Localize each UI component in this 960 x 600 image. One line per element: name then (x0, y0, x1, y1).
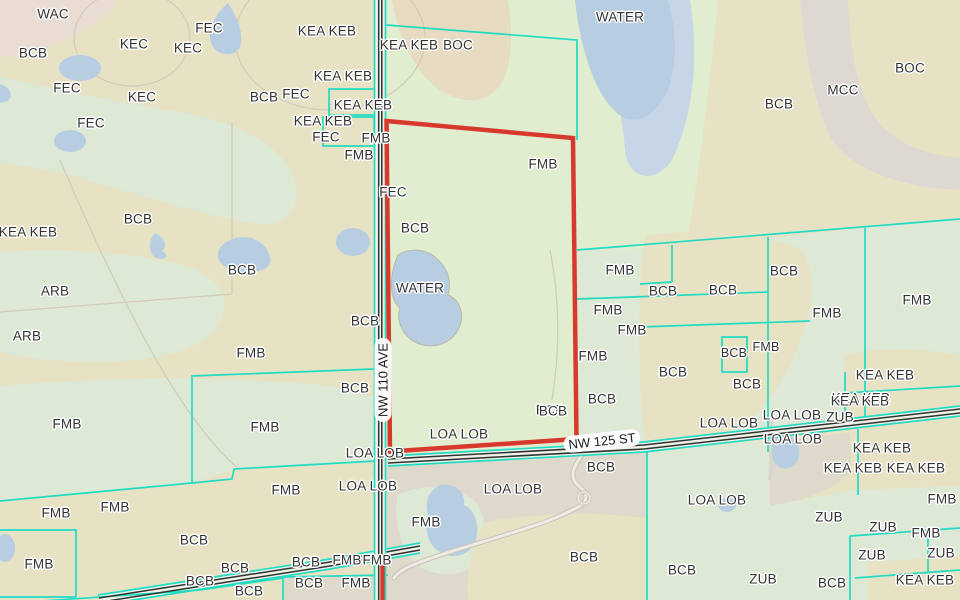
soil-label-fmb: FMB (344, 148, 373, 163)
soil-label-bcb: BCB (770, 264, 798, 279)
soil-label-kea-keb: KEA KEB (853, 441, 911, 456)
soil-label-loa-lob: LOA LOB (764, 432, 822, 447)
soil-label-bcb: BCB (570, 550, 598, 565)
soil-label-bcb: BCB (765, 97, 793, 112)
soil-label-fmb: FMB (271, 483, 300, 498)
map-label-layer: WACBCBKECFECKECFECKECBCBFECFECKEA KEBBCB… (0, 0, 960, 600)
soil-label-fmb: FMB (236, 346, 265, 361)
soil-label-fmb: FMB (617, 323, 646, 338)
soil-label-zub: ZUB (749, 572, 777, 587)
soil-label-fmb: FMB (411, 515, 440, 530)
soil-label-fmb: FMB (528, 157, 557, 172)
road-label-nw-125-st: NW 125 ST (563, 429, 642, 454)
soil-label-loa-lob: LOA LOB (484, 482, 542, 497)
soil-label-wac: WAC (37, 7, 69, 22)
soil-label-fec: FEC (53, 81, 81, 96)
soil-label-kec: KEC (174, 41, 202, 56)
soil-label-bcb: BCB (341, 381, 369, 396)
soil-label-kea-keb: KEA KEB (298, 24, 356, 39)
soil-label-bcb: BCB (250, 90, 278, 105)
soil-label-loa-lob: LOA LOB (688, 493, 746, 508)
soil-label-zub: ZUB (927, 546, 955, 561)
soil-label-kea-keb: KEA KEB (887, 461, 945, 476)
soil-label-fmb: FMB (902, 293, 931, 308)
soil-label-zub: ZUB (826, 410, 854, 425)
soil-label-bcb: BCB (180, 533, 208, 548)
soil-label-fmb: FMB (927, 492, 956, 507)
soil-label-fmb: FMB (593, 303, 622, 318)
soil-label-fmb: FMB (605, 263, 634, 278)
soil-label-bcb: BCB (401, 221, 429, 236)
soil-label-loa-lob: LOA LOB (339, 479, 397, 494)
soil-label-fmb: FMB (753, 340, 780, 354)
soil-label-bcb: BCB (228, 263, 256, 278)
soil-label-fmb: FMB (41, 506, 70, 521)
soil-label-water: WATER (396, 281, 444, 296)
soil-label-loa-lob: LOA LOB (346, 446, 404, 461)
soil-label-bcb: BCB (649, 284, 677, 299)
soil-label-bcb: BCB (721, 346, 747, 360)
soil-label-fmb: FMB (812, 306, 841, 321)
soil-label-fmb: FMB (250, 420, 279, 435)
soil-label-fmb: FMB (578, 349, 607, 364)
soil-label-kea-keb: KEA KEB (0, 225, 57, 240)
soil-label-fmb: FMB (332, 553, 361, 568)
soil-label-bcb: BCB (709, 283, 737, 298)
soil-label-bcb: BCB (292, 555, 320, 570)
soil-label-kec: KEC (120, 37, 148, 52)
soil-label-fmb: FMB (24, 557, 53, 572)
soil-label-bcb: BCB (588, 392, 616, 407)
soil-label-loa-lob: LOA LOB (700, 416, 758, 431)
soil-label-bcb: BCB (733, 377, 761, 392)
soil-label-fmb: FMB (341, 576, 370, 591)
soil-label-bcb: BCB (351, 314, 379, 329)
soil-label-water: WATER (596, 10, 644, 25)
soil-label-fec: FEC (77, 116, 105, 131)
soil-label-bcb: BCB (587, 460, 615, 475)
soil-label-bcb: BCB (818, 576, 846, 591)
soil-label-fmb: FMB (911, 526, 940, 541)
soil-label-kea-keb: KEA KEB (294, 114, 352, 129)
soil-label-bcb: BCB (221, 561, 249, 576)
soil-label-kea-keb: KEA KEB (334, 98, 392, 113)
soil-label-bcb: BCB (295, 576, 323, 591)
soil-label-fec: FEC (379, 185, 407, 200)
soil-label-fmb: FMB (52, 417, 81, 432)
soil-label-loa-lob: LOA LOB (763, 408, 821, 423)
road-label-nw-110-ave: NW 110 AVE (375, 338, 392, 422)
soil-label-arb: ARB (13, 329, 41, 344)
soil-label-zub: ZUB (869, 520, 897, 535)
soil-label-boc: BOC (443, 38, 473, 53)
soil-label-bcb: BCB (668, 563, 696, 578)
soil-label-bcb: BCB (235, 584, 263, 599)
soil-label-zub: ZUB (858, 548, 886, 563)
soil-label-kea-keb: KEA KEB (896, 573, 954, 588)
soil-label-boc: BOC (895, 61, 925, 76)
soil-label-fmb: FMB (361, 131, 390, 146)
soil-label-kea-keb: KEA KEB (824, 461, 882, 476)
soil-label-arb: ARB (41, 284, 69, 299)
soil-label-kea-keb: KEA KEB (856, 368, 914, 383)
soil-label-loa-lob: LOA LOB (430, 427, 488, 442)
map-viewport[interactable]: WACBCBKECFECKECFECKECBCBFECFECKEA KEBBCB… (0, 0, 960, 600)
soil-label-bcb: BCB (19, 46, 47, 61)
soil-label-kec: KEC (128, 90, 156, 105)
soil-label-bcb: BCB (124, 212, 152, 227)
soil-label-fec: FEC (312, 130, 340, 145)
soil-label-bcb: BCB (659, 365, 687, 380)
soil-label-zub: ZUB (815, 510, 843, 525)
soil-label-bcb: BCB (186, 574, 214, 589)
soil-label-kea-keb: KEA KEB (380, 38, 438, 53)
soil-label-fec: FEC (195, 21, 223, 36)
soil-label-bcb: BCB (539, 404, 567, 419)
soil-label-kea-keb: KEA KEB (831, 394, 889, 409)
soil-label-fec: FEC (282, 87, 310, 102)
soil-label-mcc: MCC (827, 83, 858, 98)
soil-label-kea-keb: KEA KEB (314, 69, 372, 84)
soil-label-fmb: FMB (362, 553, 391, 568)
soil-label-fmb: FMB (100, 500, 129, 515)
